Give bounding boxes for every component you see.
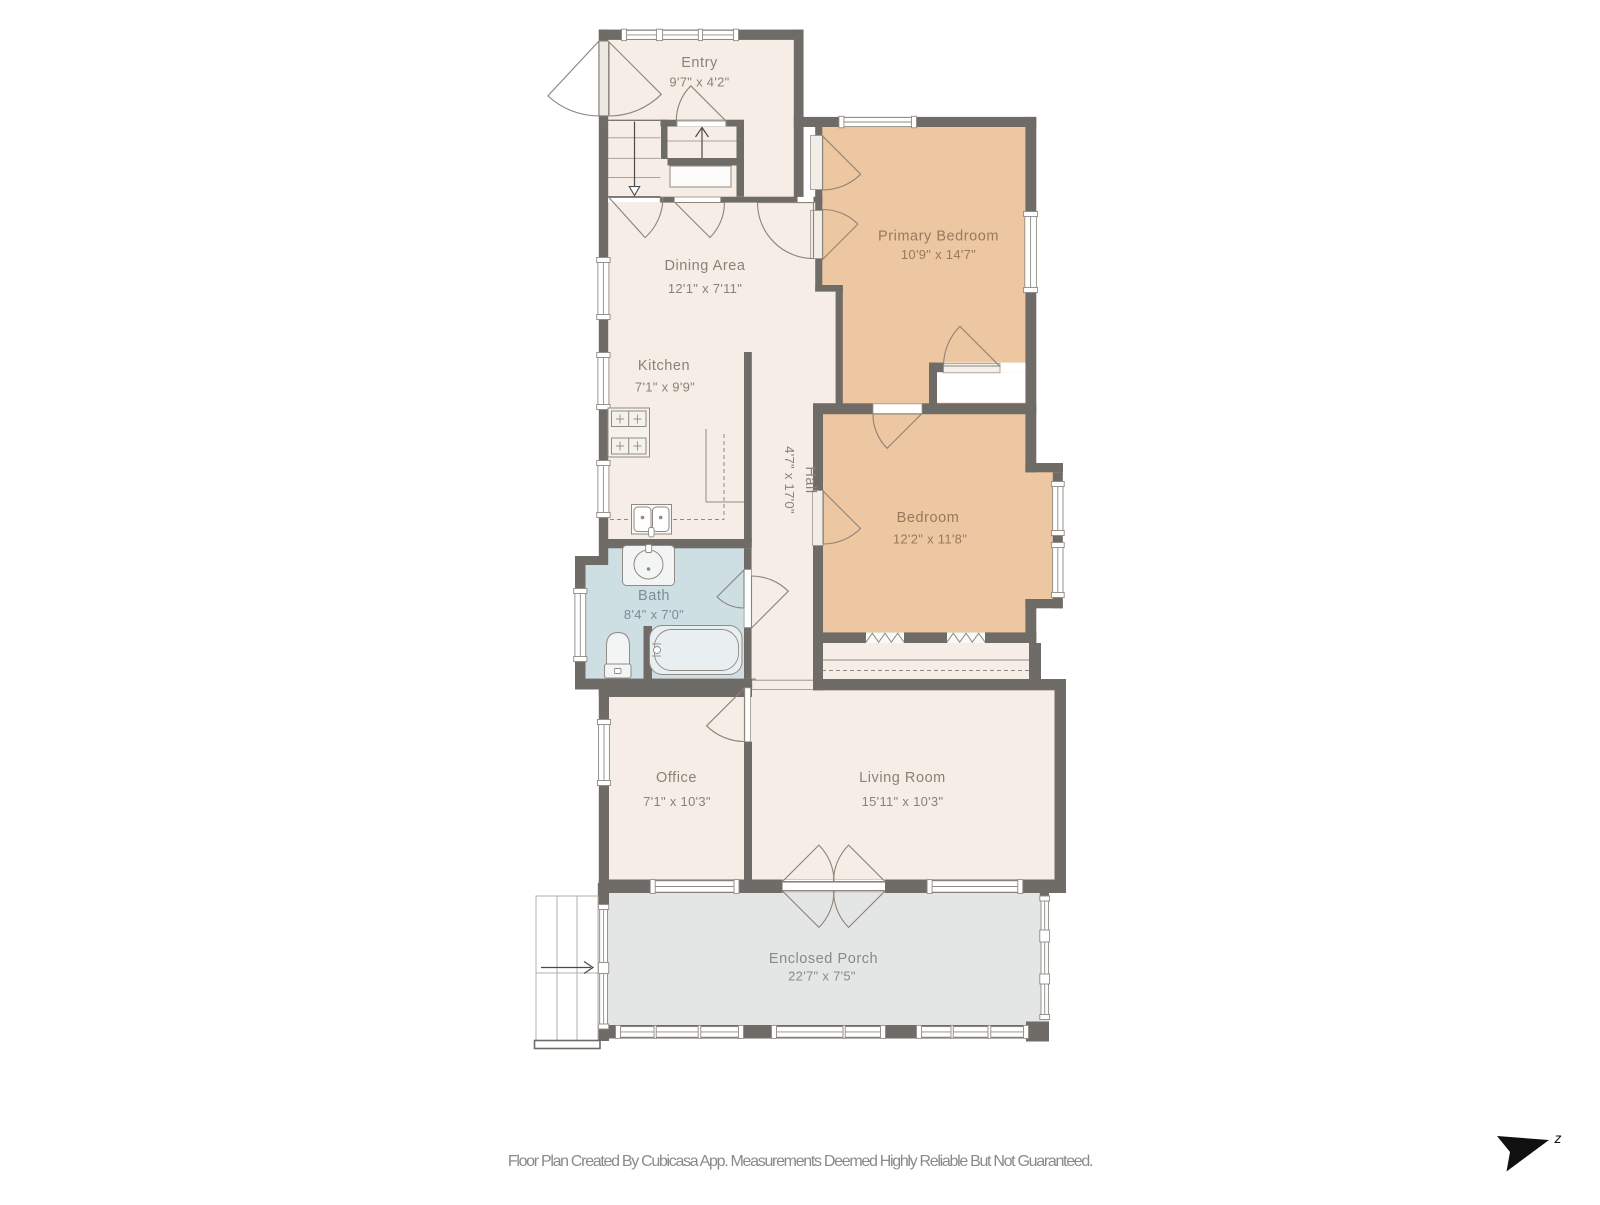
- svg-text:Living Room: Living Room: [859, 770, 946, 786]
- svg-text:Hall: Hall: [802, 466, 818, 493]
- svg-text:9'7" x 4'2": 9'7" x 4'2": [669, 75, 729, 90]
- svg-text:Enclosed Porch: Enclosed Porch: [769, 951, 878, 967]
- svg-text:12'1" x 7'11": 12'1" x 7'11": [668, 281, 742, 296]
- svg-text:10'9" x 14'7": 10'9" x 14'7": [901, 247, 976, 262]
- svg-text:Dining Area: Dining Area: [664, 258, 745, 274]
- svg-text:12'2" x 11'8": 12'2" x 11'8": [893, 532, 967, 547]
- svg-text:Entry: Entry: [681, 55, 718, 71]
- svg-text:15'11" x 10'3": 15'11" x 10'3": [862, 794, 944, 809]
- svg-text:7'1" x 10'3": 7'1" x 10'3": [643, 794, 711, 809]
- svg-text:Bath: Bath: [638, 588, 670, 604]
- svg-text:Kitchen: Kitchen: [638, 358, 690, 374]
- svg-text:Primary Bedroom: Primary Bedroom: [878, 229, 999, 245]
- svg-text:4'7" x 17'0": 4'7" x 17'0": [782, 446, 797, 514]
- svg-text:8'4" x 7'0": 8'4" x 7'0": [624, 607, 684, 622]
- svg-text:Office: Office: [656, 770, 697, 786]
- svg-text:7'1" x 9'9": 7'1" x 9'9": [635, 380, 695, 395]
- svg-text:Bedroom: Bedroom: [897, 510, 960, 526]
- svg-text:22'7" x 7'5": 22'7" x 7'5": [788, 969, 856, 984]
- svg-text:Floor Plan Created By Cubicasa: Floor Plan Created By Cubicasa App. Meas…: [508, 1153, 1092, 1170]
- svg-text:z: z: [1554, 1130, 1562, 1146]
